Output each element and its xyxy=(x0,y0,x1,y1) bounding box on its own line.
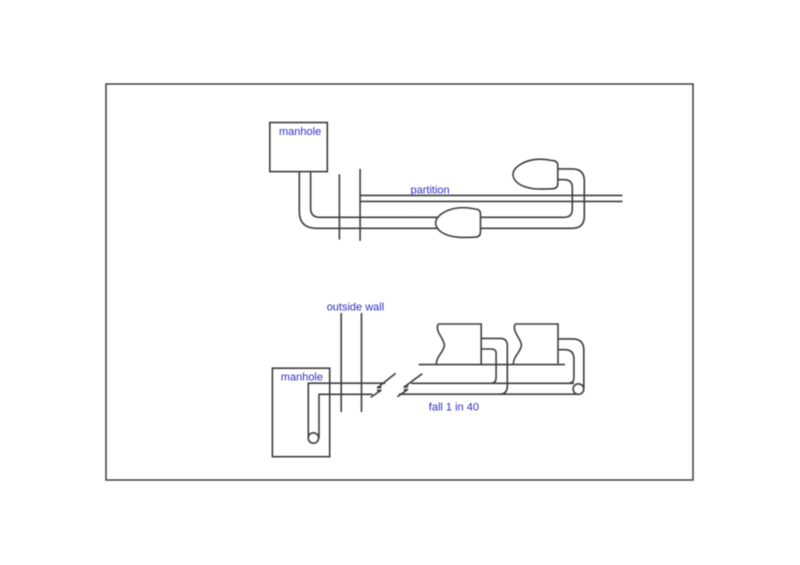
svg-text:fall 1 in 40: fall 1 in 40 xyxy=(429,401,479,413)
svg-text:manhole: manhole xyxy=(279,126,321,138)
svg-text:outside wall: outside wall xyxy=(327,301,384,313)
svg-text:partition: partition xyxy=(411,185,450,197)
svg-text:manhole: manhole xyxy=(281,372,323,384)
